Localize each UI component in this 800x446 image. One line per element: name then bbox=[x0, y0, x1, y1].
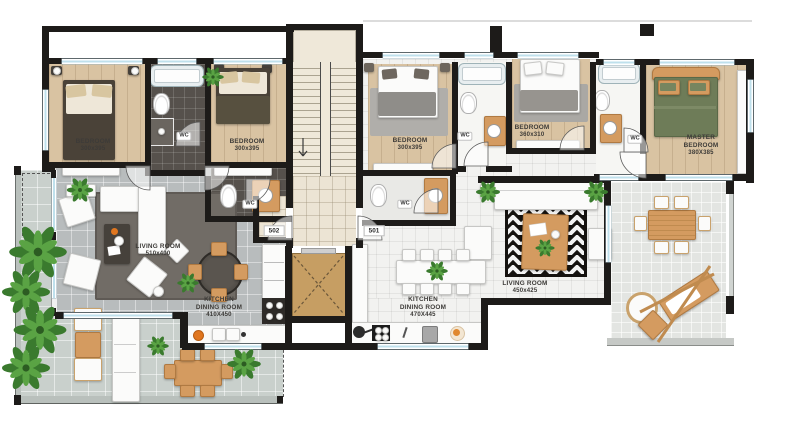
chair bbox=[438, 283, 452, 295]
chair bbox=[188, 264, 202, 280]
window bbox=[52, 242, 56, 298]
wall-stub bbox=[490, 26, 502, 54]
outdoor-chair bbox=[74, 358, 102, 381]
window bbox=[214, 59, 282, 64]
stove bbox=[262, 298, 286, 324]
burner bbox=[276, 313, 283, 320]
sliding-door bbox=[666, 175, 732, 180]
bedroom2-label: BEDROOM300x395 bbox=[230, 138, 265, 154]
chair bbox=[634, 216, 647, 231]
burner bbox=[266, 313, 273, 320]
outdoor-dining-table bbox=[174, 360, 222, 386]
bed-blanket bbox=[378, 92, 436, 116]
chair bbox=[402, 283, 416, 295]
pillow bbox=[414, 68, 430, 80]
balcony-rail bbox=[729, 194, 734, 296]
outdoor-side-table bbox=[75, 332, 101, 358]
terrace-rail-bottom bbox=[15, 396, 283, 404]
wall bbox=[452, 62, 458, 174]
wall bbox=[42, 26, 294, 32]
chair bbox=[456, 283, 470, 295]
burner bbox=[276, 302, 283, 309]
bed-blanket bbox=[520, 90, 578, 111]
balcony-post bbox=[726, 296, 734, 314]
wc-label: WC bbox=[397, 200, 412, 209]
kitchen-counter bbox=[352, 244, 368, 324]
bed-duvet bbox=[216, 96, 270, 124]
bedroom4-label: BEDROOM360x310 bbox=[515, 124, 550, 140]
burner bbox=[375, 334, 382, 341]
wall bbox=[590, 62, 596, 154]
side-table bbox=[480, 184, 494, 198]
floor-lamp bbox=[153, 286, 164, 297]
window bbox=[64, 313, 172, 318]
kitchen-502-label: KITCHENDINING ROOM410X450 bbox=[196, 296, 242, 320]
wall-stub bbox=[640, 24, 654, 36]
nightstand bbox=[364, 63, 374, 72]
living-501-label: LIVING ROOM450x425 bbox=[502, 280, 547, 296]
toilet bbox=[460, 92, 477, 114]
window bbox=[378, 344, 468, 349]
chair bbox=[456, 249, 470, 261]
window bbox=[518, 53, 578, 58]
living-502-label: LIVING ROOM510x400 bbox=[135, 243, 180, 259]
elevator-door bbox=[301, 248, 336, 254]
wall bbox=[211, 216, 292, 222]
unit-502-label: 502 bbox=[264, 225, 285, 236]
toilet bbox=[594, 90, 610, 111]
wall bbox=[481, 298, 488, 348]
sofa-cushion-line bbox=[114, 372, 136, 373]
sink bbox=[212, 328, 226, 341]
sink bbox=[487, 124, 501, 138]
window bbox=[52, 178, 56, 230]
chair bbox=[420, 249, 434, 261]
chair bbox=[180, 385, 195, 397]
chair bbox=[221, 364, 233, 379]
toilet bbox=[370, 184, 387, 207]
chair bbox=[674, 241, 689, 254]
chair bbox=[200, 349, 215, 361]
magazine bbox=[107, 245, 120, 256]
bowl bbox=[114, 236, 124, 246]
chair bbox=[211, 242, 227, 256]
sliding-door bbox=[606, 206, 611, 262]
terrace-rail-left bbox=[15, 170, 21, 404]
burner bbox=[382, 334, 389, 341]
wall bbox=[51, 170, 56, 178]
wall bbox=[508, 148, 594, 154]
wall bbox=[486, 166, 512, 172]
pillow-inner bbox=[660, 83, 676, 91]
chair bbox=[654, 241, 669, 254]
terrace-post bbox=[277, 396, 283, 403]
cutting-board bbox=[422, 326, 438, 343]
pillow bbox=[242, 71, 261, 84]
sink bbox=[603, 121, 617, 135]
wall bbox=[51, 308, 56, 316]
pillow bbox=[545, 61, 564, 76]
chair bbox=[164, 364, 176, 379]
wall bbox=[253, 237, 286, 243]
nightstand bbox=[440, 63, 450, 72]
unit-501-label: 501 bbox=[364, 225, 385, 236]
sofa-cushion-line bbox=[114, 344, 136, 345]
window bbox=[205, 344, 261, 349]
outdoor-sofa bbox=[112, 316, 140, 402]
wall bbox=[51, 232, 56, 240]
window bbox=[383, 53, 439, 58]
lamp bbox=[53, 67, 61, 75]
faucet bbox=[241, 332, 246, 337]
kitchen-island bbox=[396, 260, 486, 284]
chair bbox=[698, 216, 711, 231]
sink bbox=[226, 328, 240, 341]
wall bbox=[506, 62, 512, 154]
pillow bbox=[91, 84, 112, 98]
wall bbox=[145, 170, 205, 176]
chair bbox=[200, 385, 215, 397]
roof-edge bbox=[363, 20, 752, 22]
window bbox=[604, 60, 634, 65]
chair bbox=[180, 349, 195, 361]
bathtub bbox=[458, 63, 506, 85]
chair bbox=[674, 196, 689, 209]
window bbox=[43, 90, 48, 150]
window bbox=[465, 53, 493, 58]
bathtub bbox=[150, 65, 204, 87]
wall bbox=[286, 24, 293, 208]
wall bbox=[478, 176, 608, 183]
chair bbox=[234, 264, 248, 280]
wall bbox=[205, 162, 292, 168]
wc-label: WC bbox=[176, 132, 191, 141]
window bbox=[748, 80, 753, 132]
magazine bbox=[529, 223, 546, 236]
terrace-post bbox=[14, 395, 21, 405]
wall bbox=[485, 298, 611, 305]
burner bbox=[382, 327, 389, 334]
outdoor-dining-table bbox=[648, 210, 696, 240]
wall bbox=[286, 24, 363, 30]
burner bbox=[375, 327, 382, 334]
burner bbox=[266, 302, 273, 309]
planter-box bbox=[66, 184, 96, 197]
wall bbox=[145, 62, 151, 174]
balcony-parapet bbox=[607, 338, 734, 346]
window bbox=[660, 60, 734, 65]
chair bbox=[420, 283, 434, 295]
toilet bbox=[220, 184, 237, 208]
sink bbox=[258, 188, 273, 203]
croissant bbox=[453, 329, 460, 336]
wall bbox=[49, 162, 151, 168]
master-bedroom-label: MASTERBEDROOM380X385 bbox=[684, 134, 719, 158]
bedroom3-label: BEDROOM300x395 bbox=[393, 137, 428, 153]
lamp bbox=[131, 67, 139, 75]
wall bbox=[285, 316, 352, 323]
pillow bbox=[65, 84, 86, 98]
wall bbox=[456, 166, 466, 172]
window bbox=[158, 59, 196, 64]
wall bbox=[362, 170, 456, 176]
terrace-open-edge bbox=[283, 345, 285, 397]
plate bbox=[111, 228, 118, 235]
wall bbox=[285, 246, 292, 346]
window bbox=[62, 59, 142, 64]
balcony-post bbox=[726, 181, 734, 194]
wc-label: WC bbox=[242, 200, 257, 209]
chair bbox=[654, 196, 669, 209]
pillow-inner bbox=[690, 83, 706, 91]
toilet bbox=[153, 93, 170, 115]
bathtub bbox=[598, 63, 640, 84]
wall bbox=[356, 24, 363, 208]
counter-line bbox=[264, 262, 284, 263]
wc-label: WC bbox=[457, 132, 472, 141]
pillow bbox=[219, 71, 238, 84]
core-hall-floor bbox=[293, 176, 356, 246]
shower-drain bbox=[158, 128, 165, 135]
wc-label: WC bbox=[627, 135, 642, 144]
counter-line bbox=[264, 280, 284, 281]
bedroom1-label: BEDROOM300x395 bbox=[76, 138, 111, 154]
wall bbox=[205, 62, 211, 166]
wall bbox=[345, 246, 352, 346]
kettle bbox=[193, 330, 204, 341]
pillow bbox=[523, 61, 542, 76]
floor-plan: BEDROOM300x395 BEDROOM300x395 LIVING ROO… bbox=[0, 0, 800, 446]
sink bbox=[428, 188, 443, 203]
chair bbox=[438, 249, 452, 261]
sofa bbox=[494, 182, 598, 210]
bed-fold-line bbox=[654, 106, 716, 109]
sliding-door bbox=[600, 175, 638, 180]
wall bbox=[450, 176, 456, 226]
chair bbox=[402, 249, 416, 261]
stair-stringer bbox=[320, 62, 331, 176]
elevator-cab bbox=[292, 253, 347, 318]
sofa-back-line bbox=[497, 190, 593, 191]
pillow bbox=[382, 68, 398, 80]
kitchen-501-label: KITCHENDINING ROOM470X445 bbox=[400, 296, 446, 320]
wall bbox=[356, 238, 363, 248]
bowl bbox=[551, 230, 560, 239]
terrace-post bbox=[14, 166, 21, 175]
